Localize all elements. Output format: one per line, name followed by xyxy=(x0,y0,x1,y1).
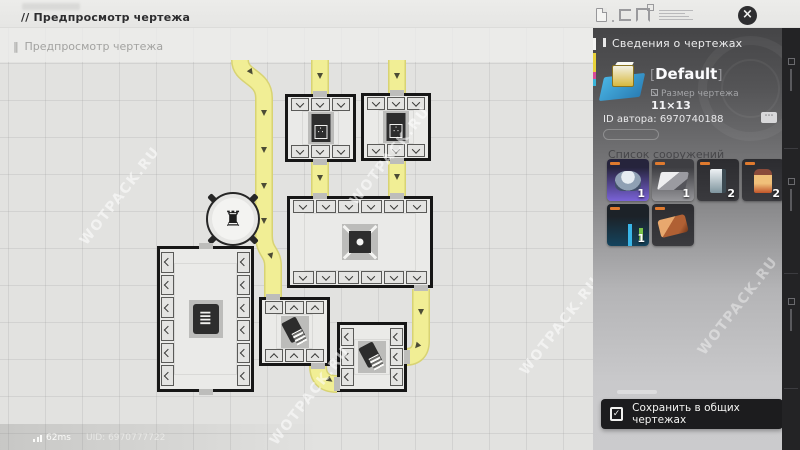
structure-card[interactable]: 2 xyxy=(742,159,784,201)
pipes-machine: ≣ xyxy=(186,299,226,339)
size-icon xyxy=(651,89,658,96)
chevron-down-icon xyxy=(316,99,324,107)
uid-value: UID: 6970777722 xyxy=(86,433,165,443)
chevron-up-icon xyxy=(290,353,298,361)
save-check-icon: ✓ xyxy=(610,407,623,421)
chevron-left-icon xyxy=(239,371,247,379)
chevron-left-icon xyxy=(239,258,247,266)
chevron-down-icon xyxy=(390,272,398,280)
status-bar: 62ms UID: 6970777722 xyxy=(0,424,320,450)
dot-icon xyxy=(612,20,614,22)
room-door xyxy=(313,159,327,165)
blueprint-name: [Default] xyxy=(650,65,722,83)
fine-print xyxy=(659,10,693,20)
chevron-left-icon xyxy=(343,373,351,381)
cmyk-strip xyxy=(593,38,596,86)
logo-frame-icon xyxy=(636,8,650,22)
module-slot xyxy=(338,200,359,213)
chevron-down-icon xyxy=(390,201,398,209)
module-slot xyxy=(406,200,427,213)
signal-icon xyxy=(33,435,42,442)
chevron-down-icon xyxy=(412,98,420,106)
module-slot xyxy=(237,343,250,364)
belt-arrow-icon xyxy=(394,73,400,79)
chevron-down-icon xyxy=(367,272,375,280)
room-door xyxy=(404,350,410,364)
chevron-down-icon xyxy=(412,272,420,280)
save-hint xyxy=(617,390,657,394)
room xyxy=(287,196,433,288)
rarity-badge xyxy=(745,162,755,165)
rarity-badge xyxy=(610,207,620,210)
module-slot xyxy=(406,271,427,284)
room-door xyxy=(390,193,404,199)
module-slot xyxy=(237,297,250,318)
belt-arrow-icon xyxy=(261,183,267,189)
module-slot xyxy=(161,365,174,386)
module-slot xyxy=(361,200,382,213)
module-slot xyxy=(161,252,174,273)
chevron-left-icon xyxy=(163,326,171,334)
chevron-left-icon xyxy=(343,353,351,361)
chevron-down-icon xyxy=(296,99,304,107)
chevron-left-icon xyxy=(239,326,247,334)
page-title: // Предпросмотр чертежа xyxy=(21,11,190,24)
structure-card[interactable]: 1 xyxy=(607,204,649,246)
chevron-left-icon xyxy=(392,353,400,361)
blueprint-thumbnail[interactable] xyxy=(600,59,646,105)
module-slot xyxy=(161,320,174,341)
module-slot xyxy=(161,343,174,364)
chevron-left-icon xyxy=(163,349,171,357)
save-button-label: Сохранить в общих чертежах xyxy=(632,402,783,426)
rarity-badge xyxy=(610,162,620,165)
chevron-left-icon xyxy=(239,349,247,357)
chevron-down-icon xyxy=(344,272,352,280)
belt-arrow-icon xyxy=(261,147,267,153)
chevron-down-icon xyxy=(299,272,307,280)
room-door xyxy=(313,91,327,97)
chevron-left-icon xyxy=(239,281,247,289)
sidebar-edge-strip xyxy=(782,28,800,450)
rarity-badge xyxy=(700,162,710,165)
rarity-badge xyxy=(655,207,665,210)
furnace-structure-icon xyxy=(754,169,772,193)
chevron-left-icon xyxy=(392,333,400,341)
watermark-text: WOTPACK.RU xyxy=(695,254,782,359)
close-button[interactable]: × xyxy=(738,6,757,25)
room-door xyxy=(390,158,404,164)
module-slot xyxy=(316,271,337,284)
logo-glyph-icon xyxy=(619,9,631,21)
chevron-down-icon xyxy=(322,272,330,280)
operator-figure-icon: ♜ xyxy=(224,207,243,231)
room-door xyxy=(266,294,280,300)
module-slot xyxy=(316,200,337,213)
chevron-down-icon xyxy=(367,201,375,209)
room-door xyxy=(199,243,213,249)
chevron-down-icon xyxy=(372,98,380,106)
plate-structure-icon xyxy=(657,214,689,238)
belt-arrow-icon xyxy=(261,218,267,224)
chevron-down-icon xyxy=(337,99,345,107)
chevron-left-icon xyxy=(163,371,171,379)
document-icon xyxy=(596,8,607,22)
module-slot xyxy=(161,275,174,296)
room xyxy=(337,322,407,392)
belt-arrow-icon xyxy=(418,309,424,315)
structure-count: 2 xyxy=(772,187,780,200)
frame-structure-icon xyxy=(628,224,632,246)
furnace-machine: ∴ xyxy=(376,107,416,147)
structure-card[interactable]: 1 xyxy=(607,159,649,201)
drill-machine xyxy=(275,312,315,352)
xdrill-machine xyxy=(340,222,380,262)
topbar-icon-group xyxy=(596,6,693,24)
furnace-machine: ∴ xyxy=(301,108,341,148)
chevron-left-icon xyxy=(163,303,171,311)
author-id: ID автора: 6970740188 xyxy=(603,114,723,125)
chevron-left-icon xyxy=(163,258,171,266)
room: ∴ xyxy=(361,93,431,161)
drill-machine xyxy=(352,337,392,377)
structure-count: 2 xyxy=(727,187,735,200)
module-slot xyxy=(293,200,314,213)
top-bar: // Предпросмотр чертежа × xyxy=(0,0,800,28)
ping-value: 62ms xyxy=(46,433,71,443)
belt-arrow-icon xyxy=(394,174,400,180)
room: ∴ xyxy=(285,94,356,162)
belt-arrow-icon xyxy=(317,175,323,181)
save-button[interactable]: ✓ Сохранить в общих чертежах xyxy=(601,399,783,429)
chevron-down-icon xyxy=(299,201,307,209)
panel-header: Сведения о чертежах xyxy=(603,37,742,50)
chevron-down-icon xyxy=(392,98,400,106)
room-door xyxy=(414,285,428,291)
module-slot xyxy=(237,252,250,273)
structure-card[interactable]: 1 xyxy=(652,159,694,201)
size-value: 11×13 xyxy=(651,99,691,112)
room xyxy=(259,297,330,366)
structure-count: 1 xyxy=(682,187,690,200)
more-button[interactable]: ⋯ xyxy=(761,112,777,123)
size-label: Размер чертежа xyxy=(651,89,739,99)
chevron-down-icon xyxy=(322,201,330,209)
blueprint-info-panel: Сведения о чертежах [Default] Размер чер… xyxy=(593,28,800,450)
chevron-down-icon xyxy=(412,201,420,209)
belt-arrow-icon xyxy=(261,110,267,116)
blueprint-canvas[interactable]: ‖Предпросмотр чертежа 62ms UID: 69707777… xyxy=(0,28,593,450)
chevron-down-icon xyxy=(344,201,352,209)
module-slot xyxy=(161,297,174,318)
chevron-up-icon xyxy=(311,353,319,361)
chevron-left-icon xyxy=(392,373,400,381)
module-slot xyxy=(384,200,405,213)
module-slot xyxy=(237,365,250,386)
module-slot xyxy=(237,320,250,341)
module-slot xyxy=(237,275,250,296)
room: ≣ xyxy=(157,246,254,392)
structure-card[interactable]: 2 xyxy=(697,159,739,201)
module-slot xyxy=(293,271,314,284)
chevron-up-icon xyxy=(270,353,278,361)
room-door xyxy=(313,193,327,199)
rarity-badge xyxy=(655,162,665,165)
operator-pod: ♜ xyxy=(206,192,260,246)
structure-count: 1 xyxy=(637,187,645,200)
redacted-label xyxy=(22,3,80,10)
panel-structure-icon xyxy=(710,169,726,193)
belt-arrow-icon xyxy=(317,73,323,79)
structure-card[interactable] xyxy=(652,204,694,246)
structure-count: 1 xyxy=(637,232,645,245)
room-door xyxy=(199,389,213,395)
room-door xyxy=(311,363,325,369)
room-door xyxy=(334,377,340,391)
module-slot xyxy=(361,271,382,284)
module-slot xyxy=(384,271,405,284)
ghost-pill xyxy=(603,129,659,140)
room-door xyxy=(390,90,404,96)
structure-list: 1 1 2 2 1 xyxy=(607,159,785,246)
module-slot xyxy=(338,271,359,284)
chevron-left-icon xyxy=(163,281,171,289)
chevron-left-icon xyxy=(239,303,247,311)
chevron-left-icon xyxy=(343,333,351,341)
